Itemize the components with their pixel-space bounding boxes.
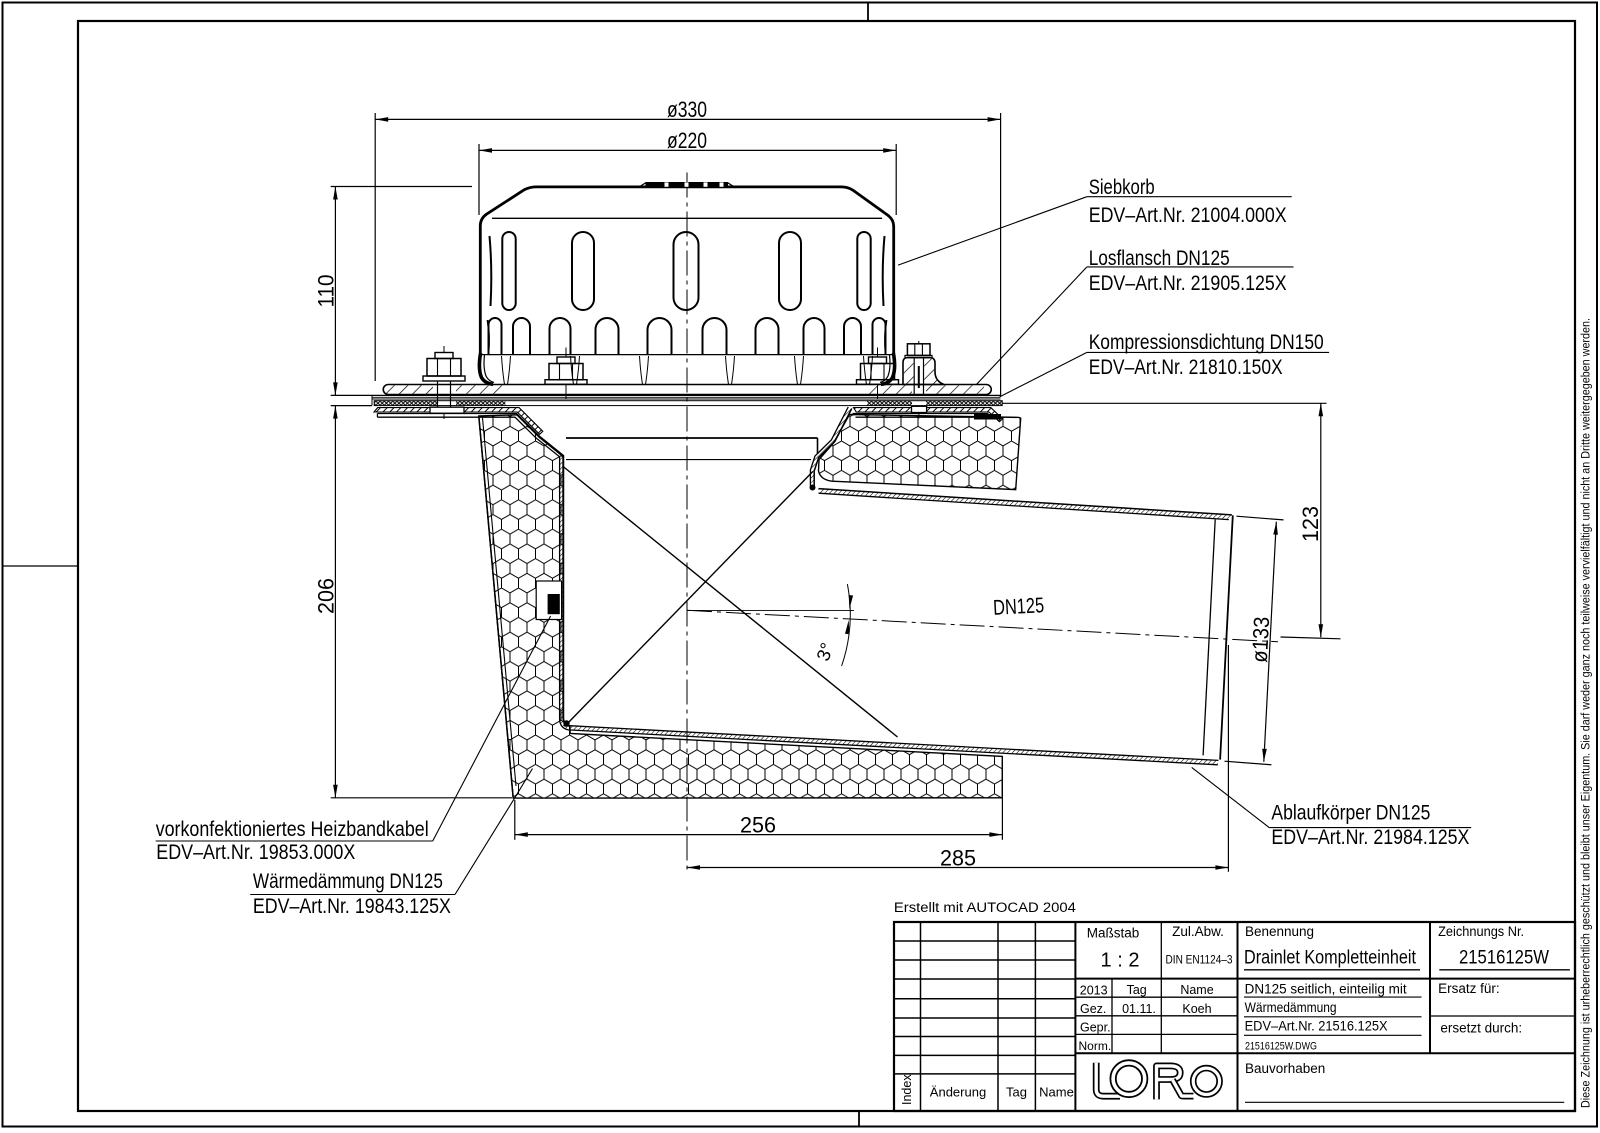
- svg-text:ersetzt durch:: ersetzt durch:: [1440, 1021, 1522, 1036]
- svg-text:Maßstab: Maßstab: [1087, 926, 1140, 941]
- svg-text:Wärmedämmung: Wärmedämmung: [1245, 1000, 1337, 1015]
- svg-text:Gepr.: Gepr.: [1080, 1021, 1111, 1035]
- svg-text:Gez.: Gez.: [1080, 1002, 1106, 1016]
- svg-text:Benennung: Benennung: [1245, 924, 1314, 939]
- svg-text:Zeichnungs Nr.: Zeichnungs Nr.: [1438, 924, 1524, 939]
- svg-text:EDV–Art.Nr. 19843.125X: EDV–Art.Nr. 19843.125X: [253, 894, 451, 918]
- svg-text:EDV–Art.Nr. 21984.125X: EDV–Art.Nr. 21984.125X: [1271, 825, 1469, 849]
- svg-text:Änderung: Änderung: [930, 1085, 986, 1100]
- svg-text:256: 256: [740, 812, 776, 837]
- svg-text:DN125 seitlich, einteilig m: DN125 seitlich, einteilig mit: [1245, 982, 1407, 997]
- svg-text:ø330: ø330: [667, 97, 707, 122]
- svg-text:EDV–Art.Nr. 21004.000X: EDV–Art.Nr. 21004.000X: [1089, 203, 1287, 227]
- svg-text:123: 123: [1298, 506, 1323, 542]
- svg-text:Norm.: Norm.: [1079, 1039, 1112, 1053]
- svg-text:EDV–Art.Nr. 21810.150X: EDV–Art.Nr. 21810.150X: [1089, 355, 1283, 379]
- svg-text:Bauvorhaben: Bauvorhaben: [1245, 1061, 1325, 1076]
- svg-text:21516125W.DWG: 21516125W.DWG: [1245, 1041, 1317, 1053]
- svg-text:Kompressionsdichtung DN150: Kompressionsdichtung DN150: [1089, 330, 1324, 354]
- svg-text:Index: Index: [900, 1074, 914, 1105]
- svg-text:21516125W: 21516125W: [1459, 947, 1550, 969]
- svg-text:Name: Name: [1039, 1085, 1074, 1100]
- svg-text:DIN EN1124–3: DIN EN1124–3: [1166, 955, 1233, 967]
- svg-text:285: 285: [940, 845, 976, 870]
- svg-text:vorkonfektioniertes Heizbandk: vorkonfektioniertes Heizbandkabel: [156, 817, 429, 841]
- svg-text:Name: Name: [1180, 983, 1213, 997]
- svg-text:Diese Zeichnung ist urheber: Diese Zeichnung ist urheberrechtlich ges…: [1581, 318, 1593, 1108]
- svg-text:110: 110: [313, 275, 338, 308]
- svg-text:EDV–Art.Nr. 21905.125X: EDV–Art.Nr. 21905.125X: [1089, 271, 1287, 295]
- svg-text:Ersatz für:: Ersatz für:: [1438, 981, 1500, 996]
- svg-text:Zul.Abw.: Zul.Abw.: [1172, 924, 1224, 939]
- svg-text:Siebkorb: Siebkorb: [1089, 175, 1155, 199]
- svg-text:206: 206: [313, 578, 338, 614]
- svg-text:Drainlet Kompletteinheit: Drainlet Kompletteinheit: [1244, 947, 1416, 969]
- svg-text:Erstellt mit AUTOCAD 2004: Erstellt mit AUTOCAD 2004: [894, 900, 1077, 915]
- svg-text:DN125: DN125: [993, 593, 1045, 620]
- svg-text:Koeh: Koeh: [1182, 1002, 1211, 1016]
- svg-text:EDV–Art.Nr. 19853.000X: EDV–Art.Nr. 19853.000X: [156, 840, 355, 864]
- svg-text:Tag: Tag: [1127, 983, 1147, 997]
- svg-text:Wärmedämmung DN125: Wärmedämmung DN125: [253, 869, 443, 893]
- svg-text:Ablaufkörper DN125: Ablaufkörper DN125: [1271, 801, 1430, 825]
- svg-text:EDV–Art.Nr. 21516.125X: EDV–Art.Nr. 21516.125X: [1245, 1018, 1388, 1033]
- svg-text:1 : 2: 1 : 2: [1101, 950, 1140, 972]
- svg-text:Tag: Tag: [1006, 1085, 1027, 1100]
- svg-text:2013: 2013: [1080, 984, 1108, 998]
- svg-text:ø220: ø220: [667, 128, 707, 153]
- svg-text:01.11.: 01.11.: [1122, 1002, 1156, 1016]
- svg-text:ø133: ø133: [1247, 616, 1274, 663]
